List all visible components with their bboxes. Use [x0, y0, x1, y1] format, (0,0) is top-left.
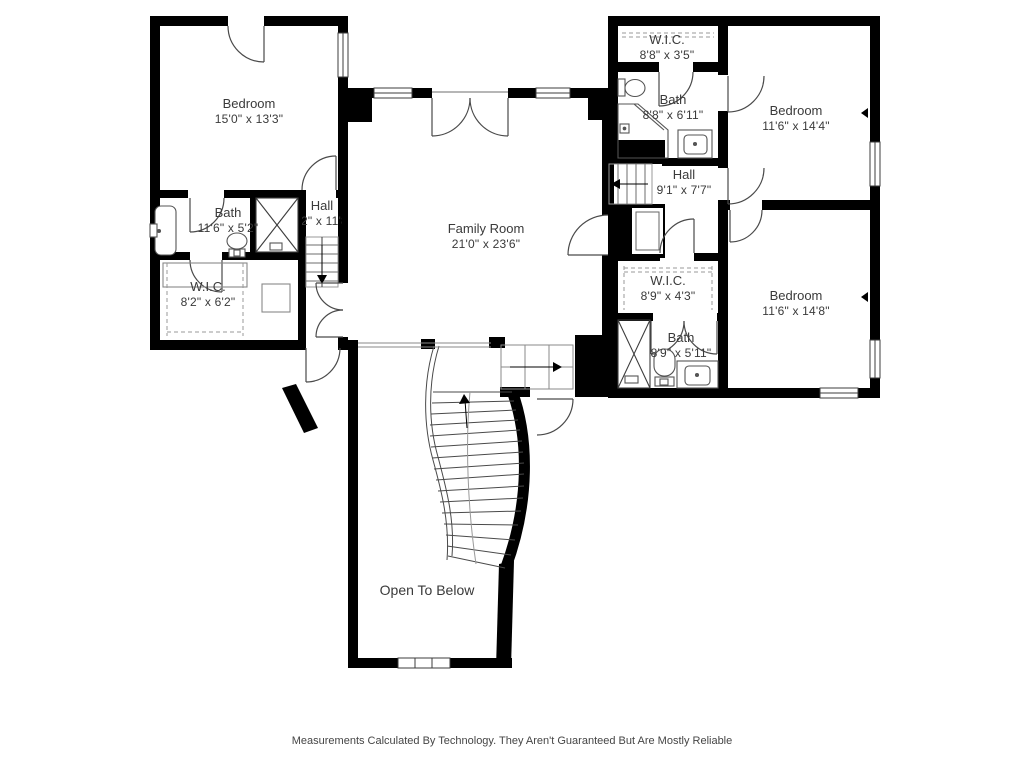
room-name: Bath	[643, 92, 704, 108]
door-arc-icon	[568, 215, 608, 255]
room-label-wic-left: W.I.C. 8'2" x 6'2"	[181, 279, 236, 310]
room-label-hall-right: Hall 9'1" x 7'7"	[657, 167, 712, 198]
stairs-main-curved	[426, 346, 524, 568]
room-name: Bath	[198, 205, 259, 221]
stairs-right-arrow-icon	[553, 362, 562, 372]
toilet-icon	[618, 79, 645, 97]
floor-plan-page: Bedroom 15'0" x 13'3" Bath 11'6" x 5'2" …	[0, 0, 1024, 768]
room-dims: 8'8" x 3'5"	[640, 48, 695, 63]
shower-icon	[618, 320, 650, 388]
room-label-bedroom-top-right: Bedroom 11'6" x 14'4"	[762, 103, 830, 134]
room-dims: 8'8" x 6'11"	[643, 108, 704, 123]
room-label-hall-left: Hall 4'2" x 11'8"	[302, 198, 342, 232]
door-arc-icon	[306, 348, 340, 382]
room-dims: 21'0" x 23'6"	[448, 237, 525, 252]
room-label-bedroom-bottom-right: Bedroom 11'6" x 14'8"	[762, 288, 830, 319]
stairs-up-arrow-icon	[459, 394, 470, 404]
window-icon	[374, 88, 412, 98]
window-icon	[338, 33, 348, 77]
window-icon	[398, 658, 450, 668]
room-name: Bath	[651, 330, 712, 346]
floor-plan-drawing	[0, 0, 1024, 768]
room-label-wic-top-right: W.I.C. 8'8" x 3'5"	[640, 32, 695, 63]
room-label-wic-mid-right: W.I.C. 8'9" x 4'3"	[641, 273, 696, 304]
stair-landing	[501, 345, 573, 389]
room-name: Open To Below	[380, 582, 475, 599]
window-icon	[820, 388, 858, 398]
door-arc-icon	[728, 76, 764, 112]
room-dims: 8'9" x 5'11"	[651, 346, 712, 361]
room-label-bath-top-right: Bath 8'8" x 6'11"	[643, 92, 704, 123]
door-arc-icon	[730, 210, 762, 242]
window-icon	[870, 340, 880, 378]
toilet-icon	[227, 233, 247, 257]
double-door-arc-icon	[316, 283, 343, 337]
door-arc-icon	[228, 26, 264, 62]
room-dims: 8'9" x 4'3"	[641, 289, 696, 304]
room-name: W.I.C.	[640, 32, 695, 48]
room-name: Bedroom	[762, 288, 830, 304]
window-icon	[536, 88, 570, 98]
sink-vanity-icon	[677, 361, 718, 388]
room-label-open-to-below: Open To Below	[380, 582, 475, 599]
room-name: Bedroom	[215, 96, 283, 112]
shower-icon	[256, 198, 298, 252]
hall-closet	[632, 208, 663, 254]
door-arc-icon	[537, 399, 573, 435]
sink-vanity-icon	[678, 130, 712, 158]
room-dims: 15'0" x 13'3"	[215, 112, 283, 127]
disclaimer-text: Measurements Calculated By Technology. T…	[292, 735, 733, 747]
room-dims: 4'2" x 11'8"	[302, 214, 342, 229]
room-name: Hall	[657, 167, 712, 183]
room-label-bath-left: Bath 11'6" x 5'2"	[198, 205, 259, 236]
room-dims: 11'6" x 5'2"	[198, 221, 259, 236]
room-dims: 8'2" x 6'2"	[181, 295, 236, 310]
room-name: W.I.C.	[181, 279, 236, 295]
french-doors-icon	[432, 92, 508, 136]
room-name: Family Room	[448, 221, 525, 237]
door-arc-icon	[660, 219, 694, 253]
room-dims: 11'6" x 14'8"	[762, 304, 830, 319]
room-name: Bedroom	[762, 103, 830, 119]
room-dims: 9'1" x 7'7"	[657, 183, 712, 198]
room-label-bedroom-left: Bedroom 15'0" x 13'3"	[215, 96, 283, 127]
door-arc-icon	[302, 156, 336, 190]
room-name: W.I.C.	[641, 273, 696, 289]
room-name: Hall	[302, 198, 342, 214]
door-arc-icon	[728, 168, 764, 204]
room-label-bath-bottom-right: Bath 8'9" x 5'11"	[651, 330, 712, 361]
room-label-family-room: Family Room 21'0" x 23'6"	[448, 221, 525, 252]
window-icon	[870, 142, 880, 186]
room-dims: 11'6" x 14'4"	[762, 119, 830, 134]
